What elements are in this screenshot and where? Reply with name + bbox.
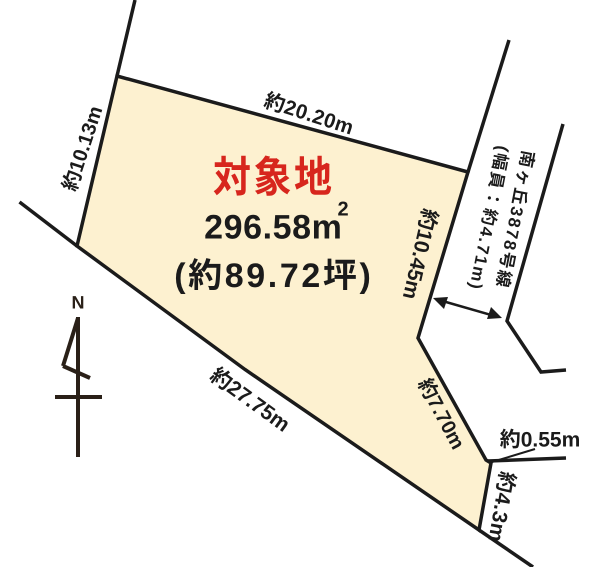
- svg-text:): ): [359, 257, 373, 295]
- svg-text:296.58m: 296.58m: [204, 209, 342, 247]
- svg-text:4.3m: 4.3m: [483, 491, 514, 544]
- svg-text:4.71m): 4.71m): [465, 225, 496, 292]
- svg-text:2: 2: [338, 199, 349, 221]
- svg-text:(: (: [492, 144, 512, 155]
- svg-text:0.55m: 0.55m: [521, 429, 581, 452]
- svg-text:89.72: 89.72: [225, 257, 323, 295]
- svg-text:(: (: [174, 257, 188, 295]
- svg-text:N: N: [72, 293, 85, 313]
- svg-text:3878: 3878: [499, 205, 526, 254]
